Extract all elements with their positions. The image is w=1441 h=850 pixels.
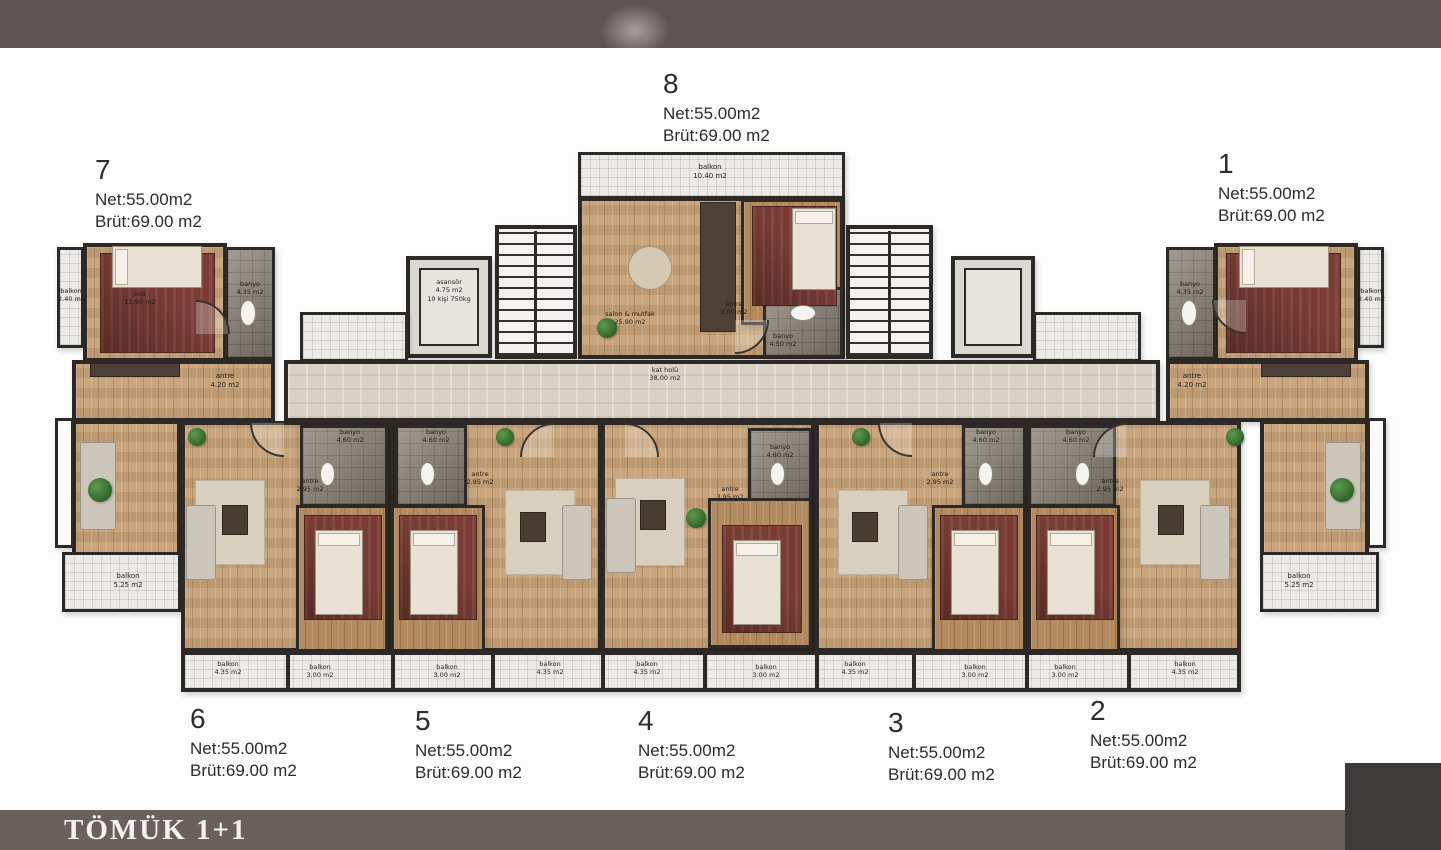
balcony-divider xyxy=(912,651,916,692)
unit-number: 6 xyxy=(190,705,297,733)
top-color-band xyxy=(0,0,1441,48)
unit-net-area: Net:55.00m2 xyxy=(663,103,770,125)
coffee-table xyxy=(852,512,878,542)
plant xyxy=(496,428,514,446)
side-column-left xyxy=(55,418,74,548)
unit-brut-area: Brüt:69.00 m2 xyxy=(1218,205,1325,227)
unit-brut-area: Brüt:69.00 m2 xyxy=(1090,752,1197,774)
room-label-banyo: banyo4.60 m2 xyxy=(1052,428,1100,445)
elevator-car xyxy=(964,268,1022,346)
bed xyxy=(112,246,202,288)
sofa xyxy=(606,498,636,573)
room-label-banyo: banyo4.60 m2 xyxy=(412,428,460,445)
plant xyxy=(852,428,870,446)
unit-label-6: 6 Net:55.00m2 Brüt:69.00 m2 xyxy=(190,705,297,782)
balcony-divider xyxy=(286,651,290,692)
coffee-table xyxy=(222,505,248,535)
plant xyxy=(686,508,706,528)
bed xyxy=(1047,530,1095,615)
room-label-banyo: banyo4.50 m2 xyxy=(758,332,808,349)
plant xyxy=(1226,428,1244,446)
unit-net-area: Net:55.00m2 xyxy=(190,738,297,760)
corridor xyxy=(284,360,1160,422)
room-label-kat-holu: kat holü38.00 m2 xyxy=(635,366,695,383)
unit-label-4: 4 Net:55.00m2 Brüt:69.00 m2 xyxy=(638,707,745,784)
balcony-divider xyxy=(491,651,495,692)
unit-brut-area: Brüt:69.00 m2 xyxy=(415,762,522,784)
room-label-balkon: balkon4.35 m2 xyxy=(1162,660,1208,677)
unit-number: 2 xyxy=(1090,697,1197,725)
room-label-salon-mutfak: salon & mutfak25.90 m2 xyxy=(595,310,665,327)
sofa xyxy=(1200,505,1230,580)
unit-net-area: Net:55.00m2 xyxy=(95,189,202,211)
balcony-divider xyxy=(703,651,707,692)
unit-number: 7 xyxy=(95,156,202,184)
balcony-divider xyxy=(1025,651,1029,692)
sofa xyxy=(562,505,592,580)
kitchen-counter xyxy=(1261,363,1351,377)
room-label-banyo: banyo4.60 m2 xyxy=(962,428,1010,445)
room-label-antre: antre2.95 m2 xyxy=(458,470,502,487)
floor-plan-sheet: 8 Net:55.00m2 Brüt:69.00 m2 7 Net:55.00m… xyxy=(0,0,1441,850)
room-label-balkon: balkon4.35 m2 xyxy=(527,660,573,677)
unit-brut-area: Brüt:69.00 m2 xyxy=(663,125,770,147)
room-label-balkon: balkon2.40 m2 xyxy=(1358,287,1384,304)
unit-label-2: 2 Net:55.00m2 Brüt:69.00 m2 xyxy=(1090,697,1197,774)
bed xyxy=(951,530,999,615)
room-label-antre: antre4.20 m2 xyxy=(195,372,255,390)
sofa xyxy=(898,505,928,580)
unit-brut-area: Brüt:69.00 m2 xyxy=(638,762,745,784)
stair-rail xyxy=(888,231,891,353)
unit-label-5: 5 Net:55.00m2 Brüt:69.00 m2 xyxy=(415,707,522,784)
side-column-right xyxy=(1367,418,1386,548)
room-label-banyo: banyo4.35 m2 xyxy=(228,280,272,297)
unit-number: 5 xyxy=(415,707,522,735)
plant xyxy=(188,428,206,446)
balcony-divider xyxy=(1127,651,1131,692)
room-label-balkon: balkon5.25 m2 xyxy=(95,572,161,590)
room-label-antre: antre2.95 m2 xyxy=(1088,477,1132,494)
coffee-table xyxy=(640,500,666,530)
room-label-balkon: balkon5.25 m2 xyxy=(1266,572,1332,590)
unit-number: 4 xyxy=(638,707,745,735)
bed xyxy=(733,540,781,625)
room-label-balkon: balkon3.00 m2 xyxy=(1042,663,1088,680)
room-label-balkon: balkon3.00 m2 xyxy=(952,663,998,680)
room-label-asansor: asansör4.75 m210 kişi 750kg xyxy=(415,278,483,303)
room-label-balkon: balkon4.35 m2 xyxy=(205,660,251,677)
room-label-antre: antre2.95 m2 xyxy=(918,470,962,487)
plant xyxy=(88,478,112,502)
footer-banner: TÖMÜK 1+1 xyxy=(0,810,1441,850)
corner-dark-box xyxy=(1345,763,1441,850)
sofa xyxy=(186,505,216,580)
unit-label-1: 1 Net:55.00m2 Brüt:69.00 m2 xyxy=(1218,150,1325,227)
room-label-balkon: balkon3.00 m2 xyxy=(743,663,789,680)
unit-label-8: 8 Net:55.00m2 Brüt:69.00 m2 xyxy=(663,70,770,147)
room-label-antre: antre3.95 m2 xyxy=(708,485,752,502)
room-label-balkon: balkon4.35 m2 xyxy=(624,660,670,677)
unit-label-7: 7 Net:55.00m2 Brüt:69.00 m2 xyxy=(95,156,202,233)
unit-number: 1 xyxy=(1218,150,1325,178)
unit-net-area: Net:55.00m2 xyxy=(415,740,522,762)
unit-net-area: Net:55.00m2 xyxy=(638,740,745,762)
room-label-balkon: balkon10.40 m2 xyxy=(645,163,775,181)
room-label-balkon: balkon3.00 m2 xyxy=(297,663,343,680)
toilet xyxy=(1181,300,1197,326)
kitchen-counter xyxy=(90,363,180,377)
elevator-right xyxy=(951,256,1035,358)
room-label-balkon: balkon3.00 m2 xyxy=(424,663,470,680)
toilet xyxy=(978,462,993,486)
unit-brut-area: Brüt:69.00 m2 xyxy=(888,764,995,786)
toilet xyxy=(770,462,785,486)
room-label-oda: oda11.90 m2 xyxy=(118,290,162,307)
unit-number: 8 xyxy=(663,70,770,98)
bed xyxy=(1239,246,1329,288)
unit-net-area: Net:55.00m2 xyxy=(1090,730,1197,752)
balcony-divider xyxy=(391,651,395,692)
coffee-table xyxy=(520,512,546,542)
room-label-balkon: balkon4.35 m2 xyxy=(832,660,878,677)
balcony-divider xyxy=(601,651,605,692)
room-label-antre: antre2.00 m2 xyxy=(712,300,756,317)
room-label-balkon: balkon2.40 m2 xyxy=(58,287,84,304)
toilet xyxy=(420,462,435,486)
plant xyxy=(1330,478,1354,502)
room-label-antre: antre2.95 m2 xyxy=(288,477,332,494)
bathtub xyxy=(790,305,816,321)
stair-rail xyxy=(534,231,537,353)
unit-number: 3 xyxy=(888,709,995,737)
project-title: TÖMÜK 1+1 xyxy=(64,814,248,847)
dining-table xyxy=(628,246,672,290)
entry-hall-right xyxy=(1033,312,1141,362)
bed xyxy=(410,530,458,615)
unit-label-3: 3 Net:55.00m2 Brüt:69.00 m2 xyxy=(888,709,995,786)
coffee-table xyxy=(1158,505,1184,535)
toilet xyxy=(240,300,256,326)
room-label-banyo: banyo4.60 m2 xyxy=(326,428,374,445)
bed xyxy=(315,530,363,615)
unit-net-area: Net:55.00m2 xyxy=(1218,183,1325,205)
unit-net-area: Net:55.00m2 xyxy=(888,742,995,764)
room-label-banyo: banyo4.35 m2 xyxy=(1168,280,1212,297)
entry-hall-left xyxy=(300,312,408,362)
room-label-antre: antre4.20 m2 xyxy=(1162,372,1222,390)
elevator-left xyxy=(406,256,492,358)
unit-brut-area: Brüt:69.00 m2 xyxy=(190,760,297,782)
balcony-divider xyxy=(815,651,819,692)
bed xyxy=(792,208,836,290)
room-label-banyo: banyo4.60 m2 xyxy=(752,443,808,460)
unit-brut-area: Brüt:69.00 m2 xyxy=(95,211,202,233)
band-smudge xyxy=(600,4,670,48)
